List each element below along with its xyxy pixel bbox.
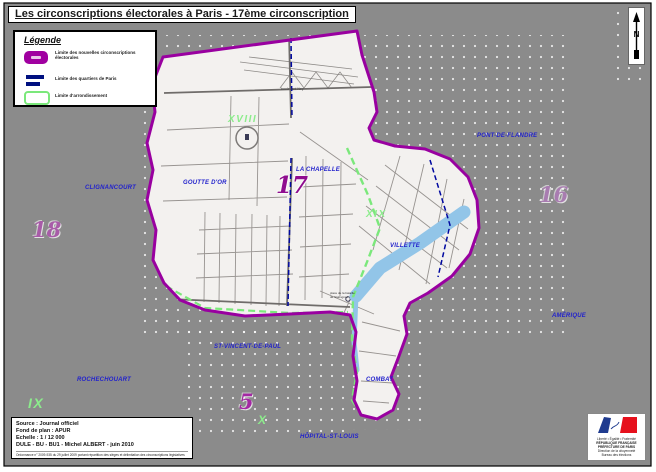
page-title: Les circonscriptions électorales à Paris…	[8, 6, 356, 23]
label-arrondissement-x: X	[258, 413, 268, 427]
logo-bureau: Bureau des élections	[588, 454, 645, 458]
label-circonscription-5: 5	[239, 389, 254, 414]
north-label: N	[629, 30, 644, 39]
legend-item-arrondissement: Limite d'arrondissement	[15, 89, 155, 107]
label-quartier-st-vincent-de-paul: ST-VINCENT-DE-PAUL	[214, 344, 281, 350]
label-place-stalingrad: place de la bataille de Stalingrad	[330, 292, 356, 299]
legend-item-label: Limite des nouvelles circonscriptions él…	[55, 50, 151, 60]
label-quartier-combat: COMBAT	[366, 377, 393, 383]
arrondissement-line-swatch	[24, 91, 50, 105]
legend-item-circonscription: Limite des nouvelles circonscriptions él…	[15, 49, 155, 67]
basemap-line: Fond de plan : APUR	[16, 428, 188, 435]
label-quartier-pont-de-flandre: PONT-DE-FLANDRE	[477, 133, 537, 139]
label-circonscription-17: 17	[276, 172, 308, 199]
legend-item-label: Limite d'arrondissement	[55, 93, 151, 98]
label-quartier-clignancourt: CLIGNANCOURT	[85, 185, 136, 191]
map-page: XVIII XIX IX X 17 18 16 5 CLIGNANCOURT G…	[0, 0, 656, 472]
label-quartier-rochechouart: ROCHECHOUART	[77, 377, 131, 383]
fine-print: Ordonnance n° 2009-935 du 29 juillet 200…	[16, 451, 188, 457]
label-street-boulevard-ney: boulevard Ney	[281, 87, 304, 91]
label-circonscription-18: 18	[32, 217, 61, 242]
source-box: Source : Journal officiel Fond de plan :…	[11, 417, 193, 459]
label-quartier-villette: VILLETTE	[390, 243, 420, 249]
north-arrow: N	[628, 7, 645, 65]
french-flag-icon	[597, 417, 637, 433]
source-line: Source : Journal officiel	[16, 421, 188, 428]
circonscription-line-swatch	[24, 51, 48, 64]
prefecture-logo: Liberté • Égalité • Fraternité RÉPUBLIQU…	[587, 413, 646, 461]
legend: Légende Limite des nouvelles circonscrip…	[13, 30, 157, 107]
label-quartier-hopital-st-louis: HÔPITAL-ST-LOUIS	[300, 434, 359, 440]
legend-item-quartiers: Limite des quartiers de Paris	[15, 72, 155, 90]
scale-line: Echelle : 1 / 12 000	[16, 435, 188, 442]
label-arrondissement-ix: IX	[28, 395, 44, 411]
label-quartier-goutte-dor: GOUTTE D'OR	[183, 180, 227, 186]
quartier-line-swatch	[24, 74, 48, 87]
credits-line: DULE - BU - BU1 - Michel ALBERT - juin 2…	[16, 442, 188, 449]
label-circonscription-16: 16	[539, 182, 568, 207]
label-quartier-la-chapelle: LA CHAPELLE	[296, 167, 340, 173]
legend-title: Légende	[24, 35, 61, 45]
label-arrondissement-xix: XIX	[366, 209, 387, 220]
label-quartier-amerique: AMÉRIQUE	[552, 313, 586, 319]
label-arrondissement-xviii: XVIII	[228, 114, 257, 125]
legend-item-label: Limite des quartiers de Paris	[55, 76, 151, 81]
